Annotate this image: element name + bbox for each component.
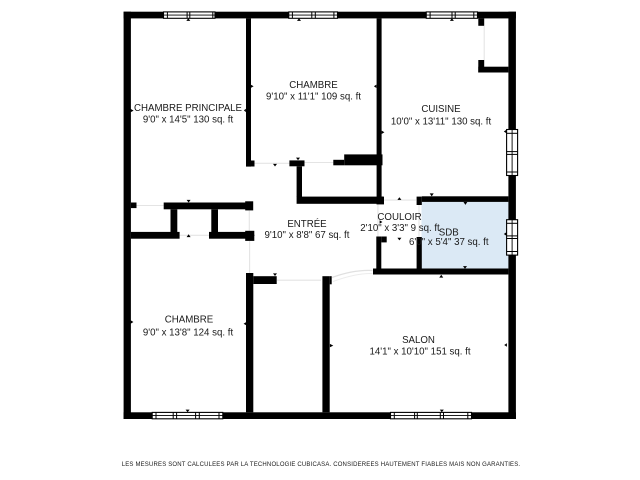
svg-text:9'0" x 14'5" 130 sq. ft: 9'0" x 14'5" 130 sq. ft xyxy=(143,115,234,126)
svg-text:CHAMBRE: CHAMBRE xyxy=(165,315,214,326)
svg-text:2'10" x 3'3" 9 sq. ft: 2'10" x 3'3" 9 sq. ft xyxy=(360,223,440,234)
svg-text:9'10" x 11'1" 109 sq. ft: 9'10" x 11'1" 109 sq. ft xyxy=(266,92,361,103)
svg-text:SALON: SALON xyxy=(402,335,435,346)
svg-text:10'0" x 13'11" 130 sq. ft: 10'0" x 13'11" 130 sq. ft xyxy=(391,117,492,128)
svg-text:ENTRÉE: ENTRÉE xyxy=(287,219,327,230)
svg-text:6'0" x 5'4" 37 sq. ft: 6'0" x 5'4" 37 sq. ft xyxy=(409,237,489,248)
svg-text:COULOIR: COULOIR xyxy=(377,212,421,223)
svg-text:9'0" x 13'8" 124 sq. ft: 9'0" x 13'8" 124 sq. ft xyxy=(143,328,234,339)
svg-text:9'10" x 8'8" 67 sq. ft: 9'10" x 8'8" 67 sq. ft xyxy=(265,230,350,241)
svg-text:CHAMBRE: CHAMBRE xyxy=(289,80,338,91)
svg-text:CUISINE: CUISINE xyxy=(421,104,461,115)
svg-text:CHAMBRE PRINCIPALE: CHAMBRE PRINCIPALE xyxy=(134,103,243,114)
svg-text:LES MESURES SONT CALCULEES PAR: LES MESURES SONT CALCULEES PAR LA TECHNO… xyxy=(122,462,521,468)
svg-text:14'1" x 10'10" 151 sq. ft: 14'1" x 10'10" 151 sq. ft xyxy=(369,347,470,358)
